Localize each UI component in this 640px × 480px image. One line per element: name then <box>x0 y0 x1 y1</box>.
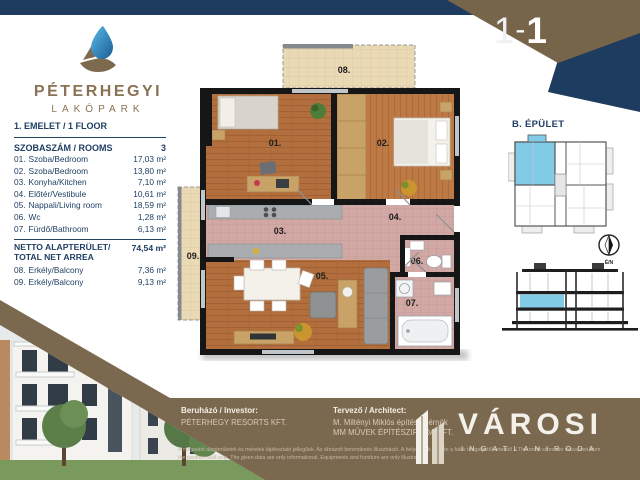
balcony-08: 08. <box>283 44 415 88</box>
agency-name: VÁROSI <box>458 408 603 442</box>
unit-code-mid: 1 <box>494 10 516 51</box>
tv-stand <box>234 331 294 344</box>
room-area: 9,13 m² <box>138 277 166 289</box>
room-area: 13,80 m² <box>133 166 166 178</box>
floor-label: 1. EMELET / 1 FLOOR <box>14 121 166 138</box>
divider <box>14 239 166 240</box>
room-label-03: 03. <box>274 226 287 236</box>
room-num: 07. <box>14 224 26 234</box>
room-name: Fürdő/Bathroom <box>29 224 89 234</box>
room-area: 7,36 m² <box>138 265 166 277</box>
room-row: 05.Nappali/Living room18,59 m² <box>14 200 166 212</box>
floor-plan: 08. 09. <box>172 40 472 365</box>
logo: PÉTERHEGYI LAKÓPARK <box>12 24 184 115</box>
rooms-header: SZOBASZÁM / ROOMS 3 <box>14 143 166 154</box>
room-num: 04. <box>14 189 26 199</box>
room-name: Konyha/Kitchen <box>29 177 87 187</box>
room-num: 03. <box>14 177 26 187</box>
room-list: 1. EMELET / 1 FLOOR SZOBASZÁM / ROOMS 3 … <box>14 121 166 289</box>
room-name: Szoba/Bedroom <box>29 166 89 176</box>
room-row: 02.Szoba/Bedroom13,80 m² <box>14 166 166 178</box>
unit-code-dash1: - <box>483 13 494 46</box>
keyplan-highlight-balcony <box>528 135 546 142</box>
room-name: Erkély/Balcony <box>29 277 84 287</box>
room-area: 17,03 m² <box>133 154 166 166</box>
room-label-05: 05. <box>316 271 329 281</box>
room-name: Wc <box>29 212 41 222</box>
washing-machine <box>396 280 413 297</box>
sofa <box>364 268 388 344</box>
room-label-04: 04. <box>389 212 402 222</box>
room-area: 1,28 m² <box>138 212 166 224</box>
room-num: 02. <box>14 166 26 176</box>
investor-name: PÉTERHEGY RESORTS KFT. <box>181 418 287 428</box>
room-row: 04.Előtér/Vestibule10,61 m² <box>14 189 166 201</box>
room-row: 07.Fürdő/Bathroom6,13 m² <box>14 224 166 236</box>
building-section <box>500 256 640 338</box>
room-label-08: 08. <box>338 65 351 75</box>
armchair <box>310 292 336 318</box>
room-area: 7,10 m² <box>138 177 166 189</box>
net-area-label-en: TOTAL NET ARREA <box>14 253 110 263</box>
room-num: 09. <box>14 277 26 287</box>
room-row: 01.Szoba/Bedroom17,03 m² <box>14 154 166 166</box>
coffee-table <box>338 280 357 328</box>
balcony-row: 09.Erkély/Balcony9,13 m² <box>14 277 166 289</box>
investor-label: Beruházó / Investor: <box>181 406 258 415</box>
unit-code-b: B <box>455 10 483 51</box>
bathroom-sink <box>434 282 451 295</box>
logo-title: PÉTERHEGYI <box>12 83 184 101</box>
net-area-value: 74,54 m² <box>132 243 166 262</box>
disclaimer-line2: the partition wall-axis. The given data … <box>178 454 630 462</box>
agency-subtitle: INGATLANIRODA <box>461 444 600 453</box>
agency-building-icon <box>414 406 448 466</box>
room-num: 08. <box>14 265 26 275</box>
room-name: Nappali/Living room <box>29 200 102 210</box>
room-area: 10,61 m² <box>133 189 166 201</box>
brochure-page: B-1-1 PÉTERHEGYI LAKÓPARK 1. EMELET / 1 … <box>0 0 640 480</box>
keyplan-stair-core <box>555 174 566 196</box>
unit-code-dash2: - <box>515 13 526 46</box>
room-name: Erkély/Balcony <box>29 265 84 275</box>
keyplan-highlight-unit <box>515 142 555 185</box>
room-label-09: 09. <box>187 251 200 261</box>
footer: Beruházó / Investor: PÉTERHEGY RESORTS K… <box>170 398 640 480</box>
architect-label: Tervező / Architect: <box>333 406 406 415</box>
room-num: 05. <box>14 200 26 210</box>
rooms-count: 3 <box>161 143 166 154</box>
unit-code-last: 1 <box>526 10 548 51</box>
building-title: B. ÉPÜLET <box>512 119 564 130</box>
room-row: 03.Konyha/Kitchen7,10 m² <box>14 177 166 189</box>
room-name: Előtér/Vestibule <box>29 189 87 199</box>
key-plan <box>508 134 620 236</box>
logo-subtitle: LAKÓPARK <box>12 104 184 115</box>
room-label-01: 01. <box>269 138 282 148</box>
room-row: 06.Wc1,28 m² <box>14 212 166 224</box>
room-area: 6,13 m² <box>138 224 166 236</box>
room-num: 01. <box>14 154 26 164</box>
section-highlight-floor <box>520 295 564 308</box>
room-name: Szoba/Bedroom <box>29 154 89 164</box>
balcony-row: 08.Erkély/Balcony7,36 m² <box>14 265 166 277</box>
room-area: 18,59 m² <box>133 200 166 212</box>
plant <box>310 103 326 119</box>
room-label-07: 07. <box>406 298 419 308</box>
photo-brick-pillar <box>0 340 10 480</box>
unit-code: B-1-1 <box>455 10 635 52</box>
bathtub <box>398 316 452 346</box>
room-num: 06. <box>14 212 26 222</box>
net-area: NETTO ALAPTERÜLET/TOTAL NET ARREA 74,54 … <box>14 243 166 262</box>
rooms-header-label: SZOBASZÁM / ROOMS <box>14 143 113 154</box>
room-label-02: 02. <box>377 138 390 148</box>
logo-drop-icon <box>76 24 120 76</box>
